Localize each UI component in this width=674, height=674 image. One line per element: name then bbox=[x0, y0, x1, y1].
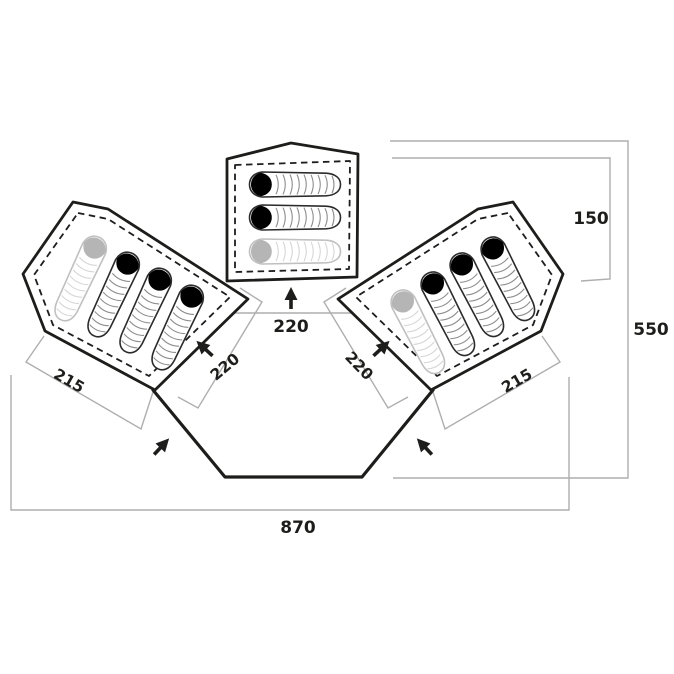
floorplan-canvas: 220 870 550 150 215 215 220 220 bbox=[0, 0, 674, 674]
total-width-label: 870 bbox=[280, 518, 316, 538]
sleeping-bag-icon bbox=[250, 172, 341, 197]
right-door-arrow-icon bbox=[412, 434, 437, 459]
cabin-left bbox=[23, 202, 248, 390]
right-cabin-depth-label: 215 bbox=[498, 365, 535, 397]
left-cabin-depth-label: 215 bbox=[50, 365, 87, 397]
dimension-line-total-width bbox=[11, 375, 569, 510]
central-living-area bbox=[153, 390, 433, 477]
tent-floorplan-diagram: 220 870 550 150 215 215 220 220 bbox=[0, 0, 674, 674]
center-cabin-depth-label: 150 bbox=[573, 209, 609, 229]
left-door-arrow-icon bbox=[149, 434, 174, 459]
total-depth-label: 550 bbox=[633, 320, 669, 340]
sleeping-bag-icon-faded bbox=[250, 239, 341, 264]
sleeping-bag-icon bbox=[250, 205, 341, 230]
right-cabin-entrance-width-label: 220 bbox=[341, 348, 377, 384]
center-entrance-width-label: 220 bbox=[273, 317, 309, 337]
center-entrance-arrow-icon bbox=[285, 287, 298, 309]
